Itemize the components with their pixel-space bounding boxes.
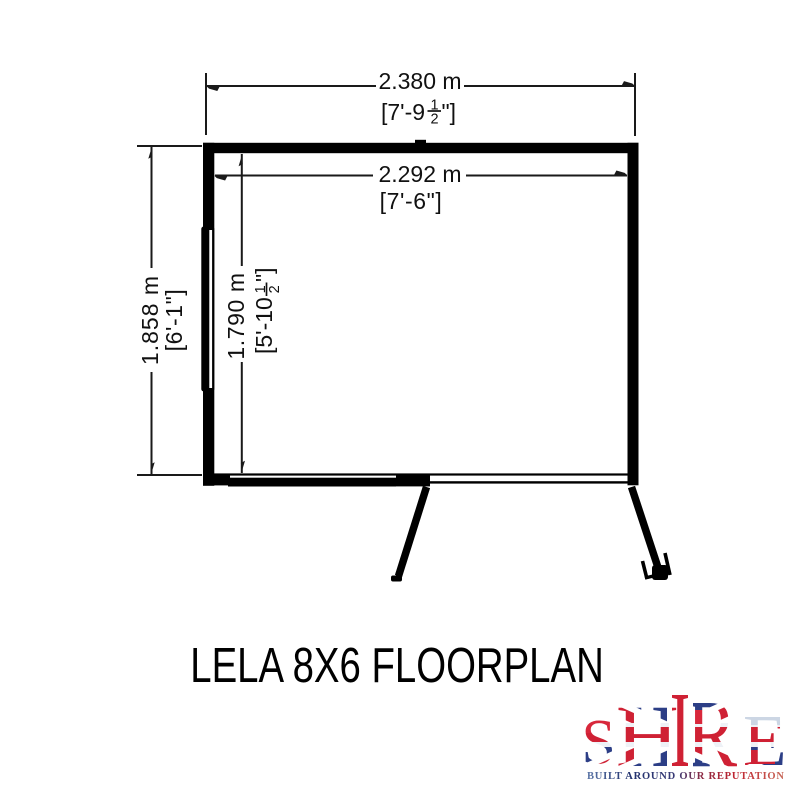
svg-text:[7'-6"]: [7'-6"]	[380, 188, 443, 214]
svg-text:"]: "]	[251, 267, 277, 282]
svg-text:2: 2	[430, 112, 438, 128]
svg-text:1.858 m: 1.858 m	[137, 275, 163, 365]
svg-text:2.380 m: 2.380 m	[378, 68, 461, 94]
svg-text:BUILT AROUND OUR REPUTATION: BUILT AROUND OUR REPUTATION	[587, 771, 785, 782]
svg-text:"]: "]	[442, 99, 457, 125]
svg-text:[7'-9: [7'-9	[381, 99, 425, 125]
svg-text:2.292 m: 2.292 m	[378, 161, 461, 187]
svg-text:2: 2	[267, 285, 283, 293]
svg-text:[5'-10: [5'-10	[251, 297, 277, 354]
svg-text:[6'-1"]: [6'-1"]	[161, 289, 187, 352]
svg-text:1.790 m: 1.790 m	[223, 272, 249, 359]
svg-text:LELA 8X6 FLOORPLAN: LELA 8X6 FLOORPLAN	[190, 638, 604, 693]
